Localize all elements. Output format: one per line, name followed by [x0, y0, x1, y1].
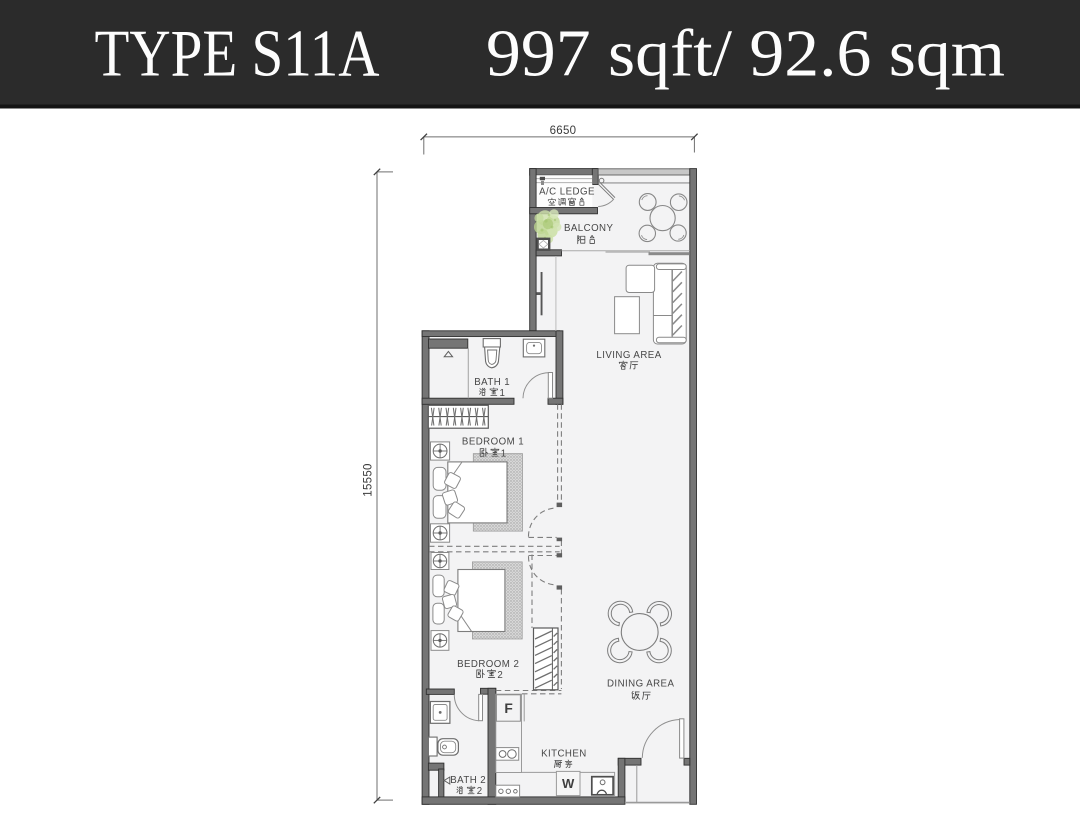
svg-text:BEDROOM 2: BEDROOM 2 — [457, 659, 519, 670]
svg-text:W: W — [562, 776, 575, 791]
svg-text:BATH 1: BATH 1 — [474, 377, 510, 388]
svg-text:2: 2 — [477, 786, 483, 797]
svg-text:LIVING AREA: LIVING AREA — [596, 350, 661, 361]
svg-text:BATH 2: BATH 2 — [450, 775, 486, 786]
svg-text:TYPE S11A: TYPE S11A — [95, 17, 380, 91]
svg-text:F: F — [504, 701, 512, 716]
svg-text:997 sqft/ 92.6 sqm: 997 sqft/ 92.6 sqm — [486, 17, 1005, 91]
svg-text:A/C LEDGE: A/C LEDGE — [539, 186, 595, 197]
svg-text:6650: 6650 — [550, 125, 577, 137]
svg-text:15550: 15550 — [363, 463, 375, 496]
svg-text:1: 1 — [500, 388, 506, 399]
svg-text:BALCONY: BALCONY — [564, 223, 614, 234]
svg-text:BEDROOM 1: BEDROOM 1 — [462, 437, 524, 448]
svg-text:2: 2 — [497, 670, 503, 681]
svg-text:KITCHEN: KITCHEN — [541, 748, 587, 759]
svg-text:1: 1 — [501, 449, 507, 460]
svg-text:DINING AREA: DINING AREA — [607, 678, 674, 689]
